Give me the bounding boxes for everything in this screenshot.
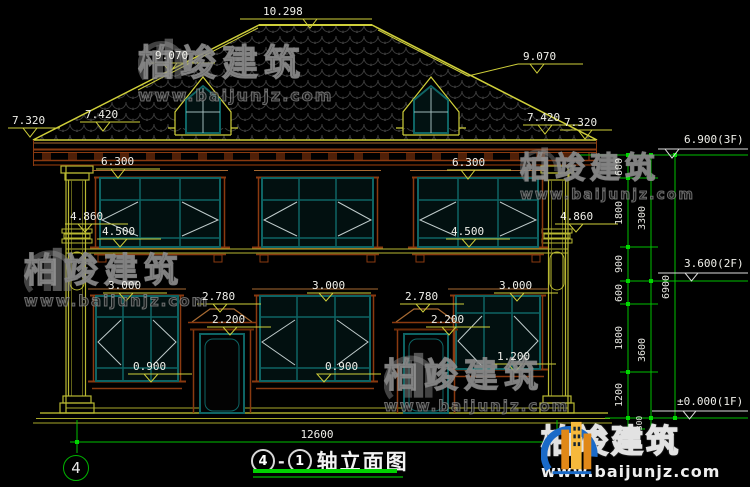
label-win1-head-left: 3.000 — [108, 280, 141, 291]
label-door-head-left: 2.200 — [212, 314, 245, 325]
chain-dim-1800-a: 1800 — [615, 201, 625, 225]
label-win2-sill-left: 4.500 — [102, 226, 135, 237]
flag-level-1f: ±0.000(1F) — [677, 396, 743, 407]
title-dash: - — [278, 452, 285, 471]
window-2f-left — [90, 171, 230, 263]
chain-dim-3300: 3300 — [638, 206, 648, 230]
label-win1-head-right: 3.000 — [499, 280, 532, 291]
label-win1-sill-left: 0.900 — [133, 361, 166, 372]
label-column-band-right: 4.860 — [560, 211, 593, 222]
label-eave-inner-right: 7.420 — [527, 112, 560, 123]
label-eave-outer-left: 7.320 — [12, 115, 45, 126]
hip-roof — [33, 25, 597, 140]
label-ridge-elevation: 10.298 — [263, 6, 303, 17]
label-column-band-left: 4.860 — [70, 211, 103, 222]
ground-lines — [33, 408, 612, 423]
title-underline-dark — [253, 476, 403, 478]
label-total-width: 12600 — [300, 429, 333, 440]
title-underline-bright — [253, 469, 397, 473]
flag-level-2f: 3.600(2F) — [684, 258, 744, 269]
chain-dim-3600: 3600 — [638, 338, 648, 362]
label-win1-sill-center: 0.900 — [325, 361, 358, 372]
chain-dim-600-a: 600 — [615, 158, 625, 176]
chain-dim-6900: 6900 — [662, 275, 672, 299]
flag-level-3f: 6.900(3F) — [684, 134, 744, 145]
label-win1-head-center: 3.000 — [312, 280, 345, 291]
chain-dim-1200: 1200 — [615, 383, 625, 407]
label-door-pediment-left: 2.780 — [202, 291, 235, 302]
label-win2-sill-right: 4.500 — [451, 226, 484, 237]
label-door-head-right: 2.200 — [431, 314, 464, 325]
window-2f-right — [408, 171, 548, 263]
window-2f-center — [252, 171, 383, 263]
title-axis-from: 4 — [258, 454, 267, 469]
elevation-drawing — [0, 0, 750, 487]
chain-dim-600-b: 600 — [615, 284, 625, 302]
axis-bubble-4-number: 4 — [71, 459, 81, 477]
axis-bubble-4: 4 — [63, 455, 89, 481]
label-door-pediment-right: 2.780 — [405, 291, 438, 302]
title-axis-to: 1 — [295, 454, 304, 469]
label-win2-head-left: 6.300 — [101, 156, 134, 167]
window-1f-right — [448, 289, 548, 377]
label-eave-inner-left: 7.420 — [85, 109, 118, 120]
label-win2-head-right: 6.300 — [452, 157, 485, 168]
chain-dim-900: 900 — [615, 255, 625, 273]
chain-dim-300: 300 — [635, 416, 645, 430]
label-dormer-right-elevation: 9.070 — [523, 51, 556, 62]
label-eave-outer-right: 7.320 — [564, 117, 597, 128]
cad-canvas: 柏竣建筑 www.baijunjz.com 柏竣建筑 www.baijunjz.… — [0, 0, 750, 487]
label-win1-sill-right: 1.200 — [497, 351, 530, 362]
label-dormer-left-elevation: 9.070 — [155, 50, 188, 61]
chain-dim-1800-b: 1800 — [615, 326, 625, 350]
